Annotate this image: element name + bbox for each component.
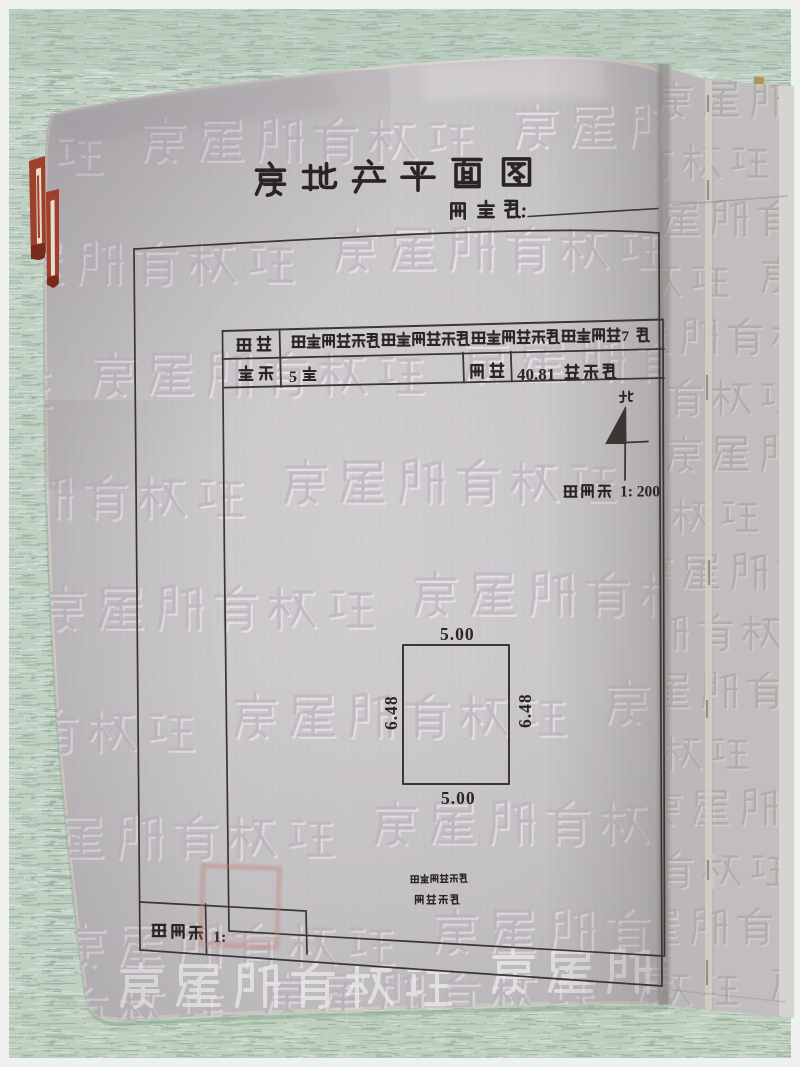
svg-text:7: 7 (622, 329, 630, 345)
svg-text:6.48: 6.48 (381, 695, 401, 730)
svg-text:40.81: 40.81 (517, 365, 555, 384)
svg-text:1: 200: 1: 200 (620, 484, 660, 501)
svg-text:5.00: 5.00 (441, 788, 476, 808)
svg-text:5.00: 5.00 (440, 624, 475, 644)
svg-text:5: 5 (289, 369, 297, 386)
svg-text:6.48: 6.48 (515, 693, 535, 728)
